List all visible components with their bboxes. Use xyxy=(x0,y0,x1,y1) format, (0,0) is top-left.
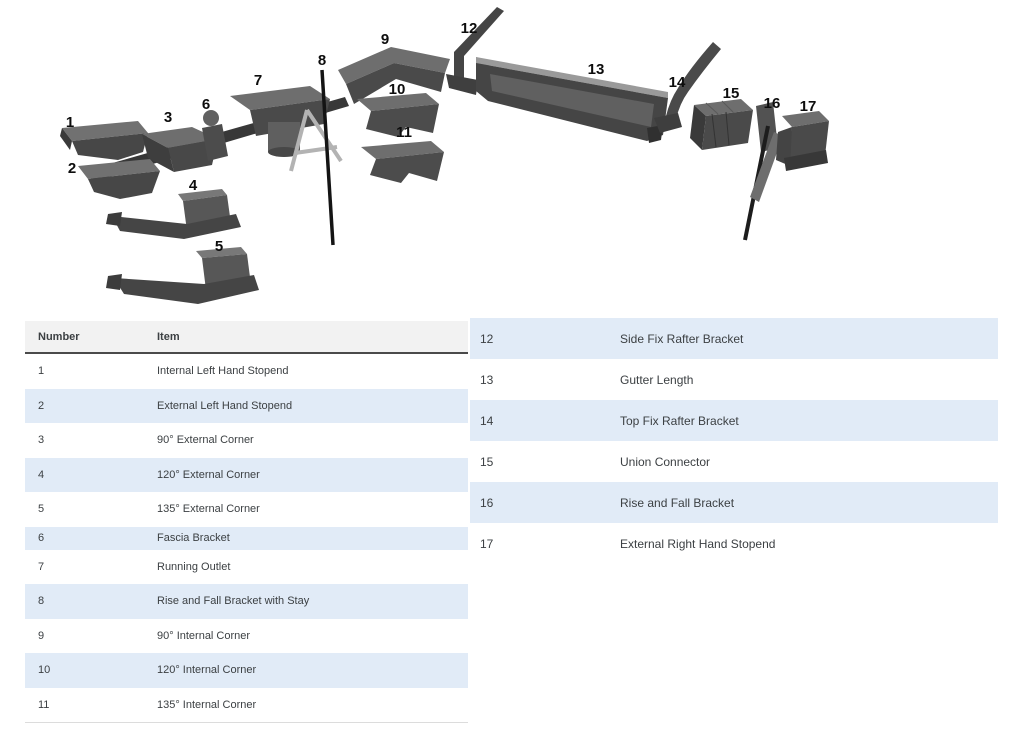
row-number: 12 xyxy=(470,332,620,346)
row-item: Rise and Fall Bracket with Stay xyxy=(157,595,468,607)
table-row: 8 Rise and Fall Bracket with Stay xyxy=(25,584,468,619)
part-external-right-stopend xyxy=(776,111,829,171)
row-item: Internal Left Hand Stopend xyxy=(157,365,468,377)
part-rise-fall-bracket-with-stay xyxy=(322,70,333,245)
part-label-5: 5 xyxy=(215,238,223,255)
table-row: 15 Union Connector xyxy=(470,441,998,482)
row-item: Rise and Fall Bracket xyxy=(620,496,998,510)
part-label-3: 3 xyxy=(164,109,172,126)
part-135-external-corner xyxy=(106,247,259,304)
part-label-8: 8 xyxy=(318,52,326,69)
row-number: 17 xyxy=(470,537,620,551)
row-number: 15 xyxy=(470,455,620,469)
row-item: External Left Hand Stopend xyxy=(157,400,468,412)
part-label-16: 16 xyxy=(764,95,781,112)
part-label-12: 12 xyxy=(461,20,478,37)
row-number: 10 xyxy=(25,664,157,676)
table-row: 13 Gutter Length xyxy=(470,359,998,400)
row-item: 135° Internal Corner xyxy=(157,699,468,711)
table-row: 16 Rise and Fall Bracket xyxy=(470,482,998,523)
part-label-11: 11 xyxy=(396,124,412,141)
row-item: Fascia Bracket xyxy=(157,532,468,544)
part-label-2: 2 xyxy=(68,160,76,177)
table-row: 6 Fascia Bracket xyxy=(25,527,468,550)
part-label-13: 13 xyxy=(588,61,605,78)
row-item: 90° External Corner xyxy=(157,434,468,446)
table-header-row: Number Item xyxy=(25,321,468,354)
row-item: Side Fix Rafter Bracket xyxy=(620,332,998,346)
table-row: 5 135° External Corner xyxy=(25,492,468,527)
row-number: 2 xyxy=(25,400,157,412)
table-row: 10 120° Internal Corner xyxy=(25,653,468,688)
row-item: 90° Internal Corner xyxy=(157,630,468,642)
row-number: 3 xyxy=(25,434,157,446)
row-number: 6 xyxy=(25,532,157,544)
part-label-6: 6 xyxy=(202,96,210,113)
gutter-parts-illustration: 1 2 3 4 5 6 7 8 9 10 11 12 13 14 15 16 1… xyxy=(0,0,1015,315)
part-label-17: 17 xyxy=(800,98,817,115)
part-label-10: 10 xyxy=(389,81,406,98)
part-external-left-stopend xyxy=(78,159,160,199)
table-row: 2 External Left Hand Stopend xyxy=(25,389,468,424)
part-label-15: 15 xyxy=(723,85,740,102)
part-union-connector xyxy=(690,99,753,150)
row-number: 11 xyxy=(25,699,157,711)
table-row: 7 Running Outlet xyxy=(25,550,468,585)
table-row: 14 Top Fix Rafter Bracket xyxy=(470,400,998,441)
row-item: 120° External Corner xyxy=(157,469,468,481)
parts-table-right: 12 Side Fix Rafter Bracket 13 Gutter Len… xyxy=(470,318,998,564)
col-header-number: Number xyxy=(25,331,157,343)
row-item: Gutter Length xyxy=(620,373,998,387)
table-row: 4 120° External Corner xyxy=(25,458,468,493)
row-item: Running Outlet xyxy=(157,561,468,573)
row-item: 120° Internal Corner xyxy=(157,664,468,676)
table-row: 3 90° External Corner xyxy=(25,423,468,458)
table-row: 9 90° Internal Corner xyxy=(25,619,468,654)
gutter-parts-diagram: 1 2 3 4 5 6 7 8 9 10 11 12 13 14 15 16 1… xyxy=(0,0,1015,315)
row-number: 9 xyxy=(25,630,157,642)
part-135-internal-corner xyxy=(361,141,444,183)
table-row: 1 Internal Left Hand Stopend xyxy=(25,354,468,389)
part-label-7: 7 xyxy=(254,72,262,89)
table-row: 11 135° Internal Corner xyxy=(25,688,468,723)
part-label-9: 9 xyxy=(381,31,389,48)
row-item: Top Fix Rafter Bracket xyxy=(620,414,998,428)
row-number: 13 xyxy=(470,373,620,387)
row-item: 135° External Corner xyxy=(157,503,468,515)
col-header-item: Item xyxy=(157,331,468,343)
row-number: 14 xyxy=(470,414,620,428)
table-row: 17 External Right Hand Stopend xyxy=(470,523,998,564)
row-number: 1 xyxy=(25,365,157,377)
row-number: 4 xyxy=(25,469,157,481)
part-label-1: 1 xyxy=(66,114,74,131)
row-number: 8 xyxy=(25,595,157,607)
part-label-4: 4 xyxy=(189,177,198,194)
row-item: External Right Hand Stopend xyxy=(620,537,998,551)
row-item: Union Connector xyxy=(620,455,998,469)
part-gutter-length xyxy=(476,57,668,143)
part-label-14: 14 xyxy=(669,74,686,91)
row-number: 16 xyxy=(470,496,620,510)
table-row: 12 Side Fix Rafter Bracket xyxy=(470,318,998,359)
row-number: 7 xyxy=(25,561,157,573)
row-number: 5 xyxy=(25,503,157,515)
parts-table-left: Number Item 1 Internal Left Hand Stopend… xyxy=(25,321,468,723)
